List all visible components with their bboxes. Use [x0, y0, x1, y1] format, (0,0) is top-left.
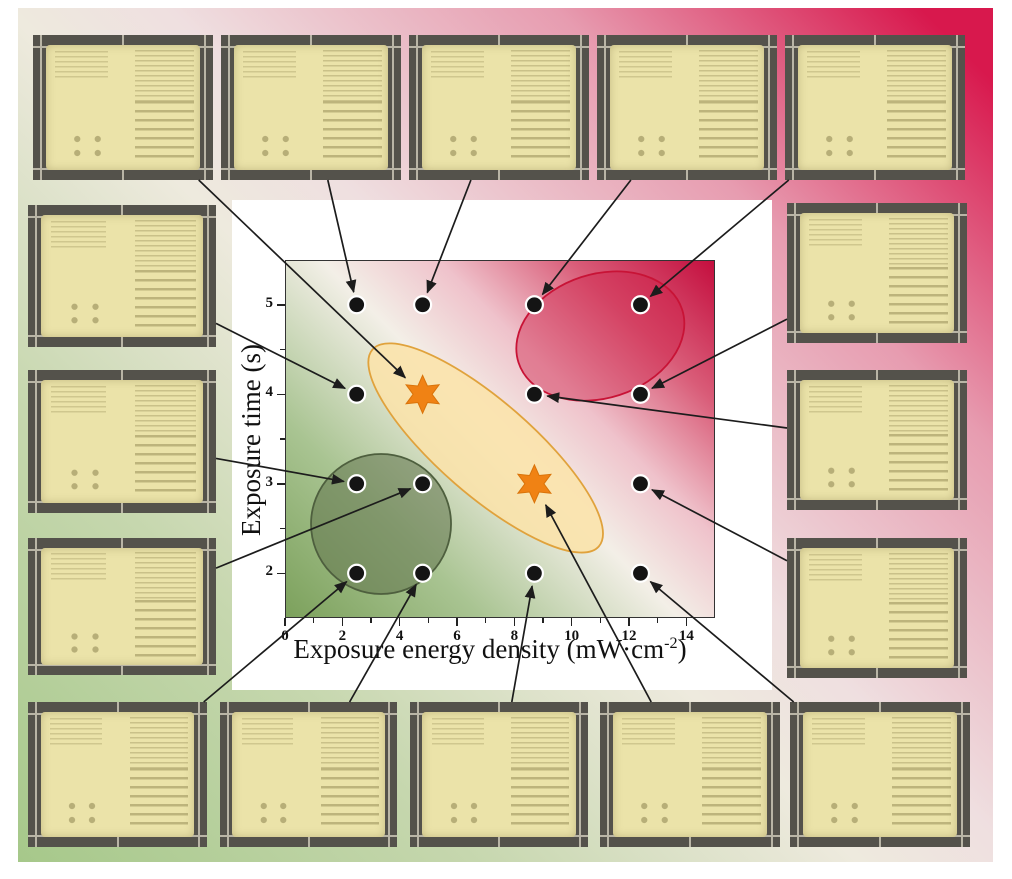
sample-chip — [41, 548, 203, 666]
sample-chip — [422, 45, 577, 170]
dot-test-pattern — [64, 466, 106, 493]
sample-photo-top-3 — [409, 35, 589, 180]
sample-photo-top-5 — [785, 35, 965, 180]
x-minor-tick — [542, 618, 543, 623]
dot-test-pattern — [67, 132, 107, 159]
y-major-tick — [277, 573, 285, 575]
x-major-tick — [399, 618, 401, 626]
line-test-pattern — [511, 50, 570, 164]
x-minor-tick — [313, 618, 314, 623]
y-major-tick — [277, 304, 285, 306]
fine-line-pattern — [242, 718, 294, 748]
x-axis-label-main: Exposure energy density (mW·cm — [293, 634, 664, 664]
x-major-tick — [514, 618, 516, 626]
sample-chip — [800, 548, 955, 668]
fine-line-pattern — [432, 718, 484, 748]
sample-chip — [232, 712, 384, 837]
sample-chip — [234, 45, 389, 170]
fine-line-pattern — [622, 718, 675, 748]
x-minor-tick — [657, 618, 658, 623]
line-test-pattern — [702, 717, 761, 831]
sample-chip — [41, 712, 195, 837]
x-major-tick — [342, 618, 344, 626]
dot-test-pattern — [255, 132, 295, 159]
line-test-pattern — [699, 50, 758, 164]
fine-line-pattern — [812, 718, 865, 748]
x-minor-tick — [485, 618, 486, 623]
fine-line-pattern — [807, 51, 860, 81]
line-test-pattern — [889, 553, 948, 663]
sample-chip — [800, 380, 955, 500]
y-axis-label: Exposure time (s) — [234, 270, 268, 610]
line-test-pattern — [135, 385, 196, 497]
figure-canvas: 024681012142345 Exposure energy density … — [0, 0, 1012, 879]
y-major-tick — [277, 483, 285, 485]
y-minor-tick — [280, 438, 285, 439]
dot-test-pattern — [64, 630, 106, 656]
line-test-pattern — [135, 50, 194, 164]
x-axis-label: Exposure energy density (mW·cm-2) — [240, 634, 740, 665]
line-test-pattern — [130, 717, 189, 831]
line-test-pattern — [323, 50, 382, 164]
x-major-tick — [686, 618, 688, 626]
dot-test-pattern — [821, 297, 861, 323]
sample-photo-bottom-5 — [790, 702, 970, 847]
fine-line-pattern — [55, 51, 108, 81]
sample-chip — [422, 712, 575, 837]
sample-chip — [46, 45, 201, 170]
line-test-pattern — [889, 385, 948, 495]
x-major-tick — [456, 618, 458, 626]
sample-photo-left-3 — [28, 538, 216, 675]
dot-test-pattern — [254, 799, 294, 826]
fine-line-pattern — [51, 553, 106, 581]
plot-area — [285, 260, 715, 618]
sample-photo-left-2 — [28, 370, 216, 513]
sample-photo-bottom-2 — [220, 702, 397, 847]
line-test-pattern — [892, 717, 951, 831]
sample-chip — [41, 380, 203, 503]
dot-test-pattern — [821, 464, 861, 490]
y-major-tick — [277, 394, 285, 396]
sample-photo-left-1 — [28, 205, 216, 347]
fine-line-pattern — [431, 51, 484, 81]
fine-line-pattern — [809, 386, 862, 415]
x-axis-label-close: ) — [678, 634, 687, 664]
dot-test-pattern — [443, 132, 483, 159]
sample-photo-right-2 — [787, 370, 967, 510]
sample-chip — [41, 215, 203, 337]
sample-photo-bottom-4 — [600, 702, 780, 847]
dot-test-pattern — [64, 300, 106, 327]
y-minor-tick — [280, 349, 285, 350]
x-minor-tick — [370, 618, 371, 623]
line-test-pattern — [135, 552, 196, 659]
sample-photo-bottom-1 — [28, 702, 207, 847]
sample-photo-right-1 — [787, 203, 967, 343]
fine-line-pattern — [50, 718, 102, 748]
fine-line-pattern — [243, 51, 296, 81]
line-test-pattern — [135, 220, 196, 331]
fine-line-pattern — [809, 219, 862, 248]
sample-photo-bottom-3 — [410, 702, 588, 847]
y-minor-tick — [280, 528, 285, 529]
dot-test-pattern — [819, 132, 859, 159]
dot-test-pattern — [444, 799, 484, 826]
dot-test-pattern — [824, 799, 864, 826]
sample-chip — [800, 213, 955, 333]
sample-photo-top-4 — [597, 35, 777, 180]
dot-test-pattern — [631, 132, 671, 159]
sample-photo-top-2 — [221, 35, 401, 180]
x-minor-tick — [600, 618, 601, 623]
sample-chip — [610, 45, 765, 170]
x-major-tick — [571, 618, 573, 626]
sample-photo-right-3 — [787, 538, 967, 678]
fine-line-pattern — [809, 554, 862, 583]
sample-chip — [798, 45, 953, 170]
dot-test-pattern — [62, 799, 102, 826]
fine-line-pattern — [51, 221, 106, 250]
line-test-pattern — [889, 218, 948, 328]
x-major-tick — [284, 618, 286, 626]
dot-test-pattern — [821, 632, 861, 658]
line-test-pattern — [511, 717, 569, 831]
fine-line-pattern — [619, 51, 672, 81]
line-test-pattern — [321, 717, 379, 831]
sample-chip — [613, 712, 768, 837]
x-axis-label-superscript: -2 — [664, 634, 677, 652]
line-test-pattern — [887, 50, 946, 164]
x-minor-tick — [428, 618, 429, 623]
sample-chip — [803, 712, 958, 837]
x-major-tick — [628, 618, 630, 626]
fine-line-pattern — [51, 386, 106, 416]
sample-photo-top-1 — [33, 35, 213, 180]
dot-test-pattern — [634, 799, 674, 826]
